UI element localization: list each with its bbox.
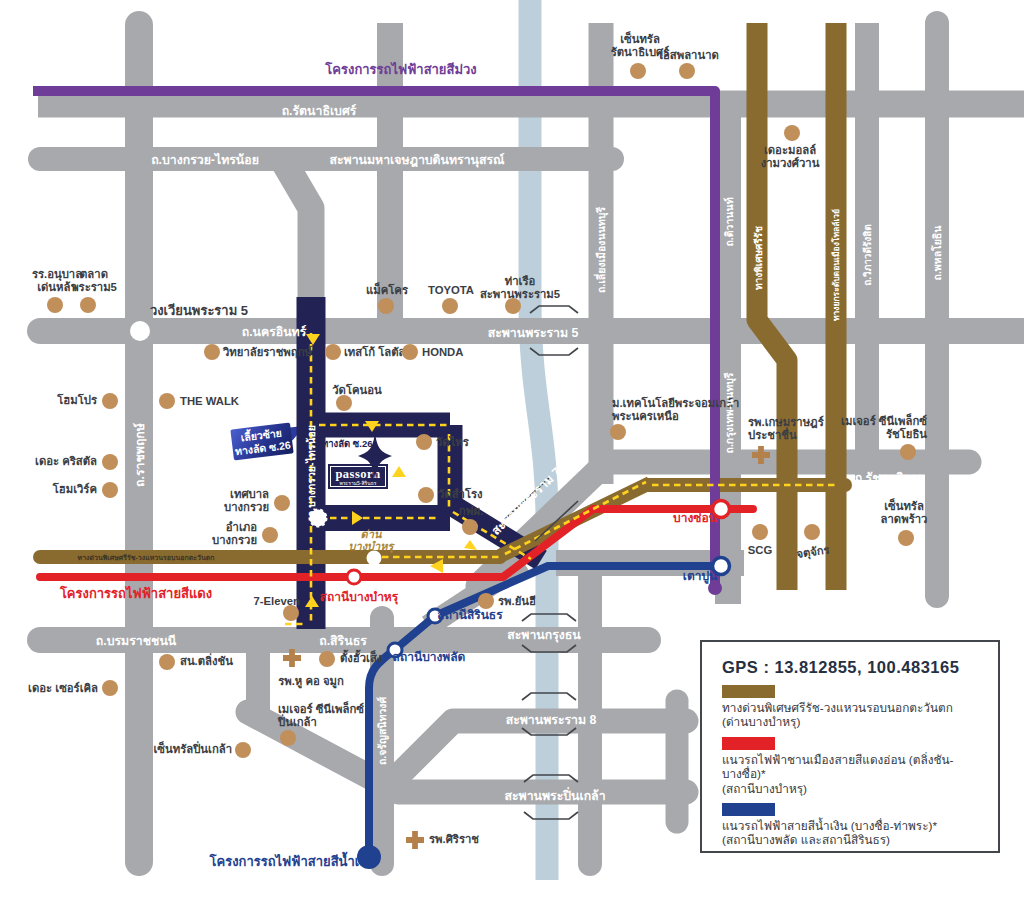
rama5-roundabout bbox=[130, 321, 150, 341]
navy-roundabout bbox=[310, 510, 327, 527]
legend-swatch-icon bbox=[722, 685, 775, 698]
legend-item-text: แนวรถไฟฟ้าสายสีน้ำเงิน (บางซื่อ-ท่าพระ)*… bbox=[722, 819, 986, 848]
legend-item: ทางด่วนพิเศษศรีรัช-วงแหวนรอบนอกตะวันตก (… bbox=[722, 685, 986, 730]
legend-swatch-icon bbox=[722, 803, 775, 816]
legend-item-text: ทางด่วนพิเศษศรีรัช-วงแหวนรอบนอกตะวันตก (… bbox=[722, 701, 986, 730]
bang-bamru-station bbox=[347, 570, 361, 584]
gps-coordinates: GPS : 13.812855, 100.483165 bbox=[722, 658, 998, 677]
star-icon bbox=[358, 432, 392, 480]
toll-gate-circle bbox=[367, 551, 382, 566]
bang-phlat-station bbox=[388, 643, 402, 657]
chao-phraya-river bbox=[530, 0, 547, 880]
legend-items: ทางด่วนพิเศษศรีรัช-วงแหวนรอบนอกตะวันตก (… bbox=[702, 685, 998, 848]
legend-item: แนวรถไฟฟ้าสายสีน้ำเงิน (บางซื่อ-ท่าพระ)*… bbox=[722, 803, 986, 848]
bang-son-interchange bbox=[713, 501, 730, 518]
legend-box: GPS : 13.812855, 100.483165 ทางด่วนพิเศษ… bbox=[700, 640, 1000, 853]
legend-item-text: แนวรถไฟฟ้าชานเมืองสายสีแดงอ่อน (ตลิ่งชัน… bbox=[722, 753, 986, 796]
sirindhorn-station bbox=[428, 609, 442, 623]
tao-pun-interchange bbox=[713, 558, 730, 575]
blue-line-terminus bbox=[357, 845, 381, 869]
map-canvas: รร.อนุบาล เด่นหล้าตลาด พระราม5แม็คโครTOY… bbox=[0, 0, 1024, 897]
legend-item: แนวรถไฟฟ้าชานเมืองสายสีแดงอ่อน (ตลิ่งชัน… bbox=[722, 737, 986, 796]
legend-swatch-icon bbox=[722, 737, 775, 750]
